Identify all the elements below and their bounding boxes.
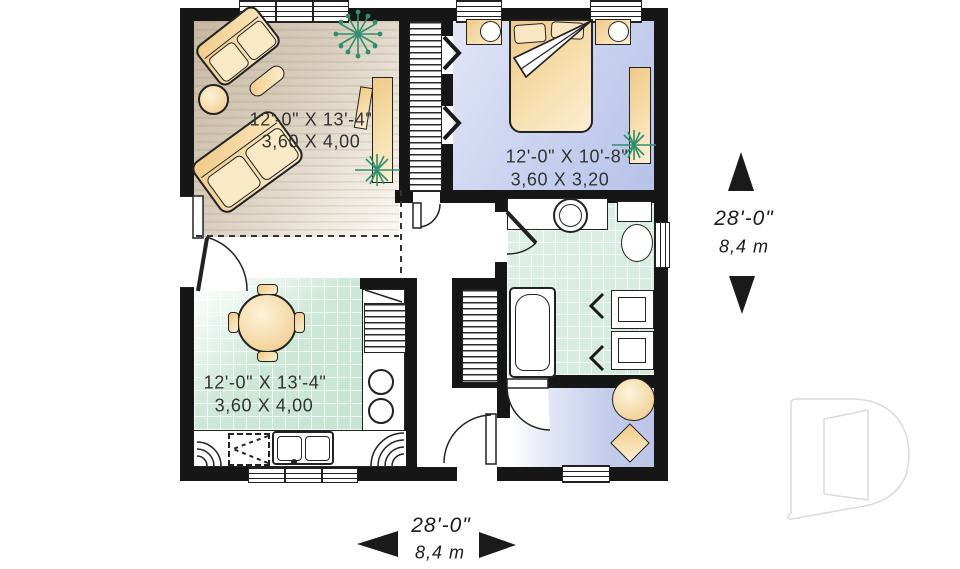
den-door <box>507 379 550 430</box>
living-room-label-imperial: 12'-0" X 13'-4" <box>250 110 373 131</box>
washer-dryer-chevron-icon <box>591 294 603 370</box>
bed-folded-sheet <box>514 21 591 77</box>
sink-faucet <box>291 459 297 465</box>
dimension-arrow-right-icon <box>479 532 516 558</box>
bathroom-door <box>507 212 536 254</box>
dimension-arrow-down-icon <box>729 276 755 314</box>
dimension-bottom-imperial: 28'-0" <box>411 514 471 538</box>
bedroom-label-metric: 3,60 X 3,20 <box>511 170 610 191</box>
plan-overlay <box>0 0 960 569</box>
living-room-label-metric: 3,60 X 4,00 <box>262 132 361 153</box>
logo-d-watermark-icon <box>788 399 909 519</box>
cabinet-diagonal <box>365 290 402 302</box>
plant-icon <box>334 10 383 59</box>
closet-bifold-icon <box>444 37 459 139</box>
dimension-right-imperial: 28'-0" <box>714 207 774 231</box>
kitchen-label-metric: 3,60 X 4,00 <box>215 396 314 417</box>
dimension-right-metric: 8,4 m <box>719 237 769 258</box>
front-door <box>444 414 496 464</box>
bedroom-label-imperial: 12'-0" X 10'-8" <box>506 147 629 168</box>
floor-plan: 12'-0" X 13'-4" 3,60 X 4,00 12'-0" X 10'… <box>0 0 960 569</box>
counter-corner-curves <box>197 433 404 466</box>
kitchen-label-imperial: 12'-0" X 13'-4" <box>204 373 327 394</box>
dimension-arrow-left-icon <box>357 531 398 557</box>
dishwasher-swing-dashed <box>233 436 268 463</box>
dimension-bottom-metric: 8,4 m <box>415 543 465 564</box>
plant-icon <box>355 154 400 186</box>
dimension-arrow-up-icon <box>728 152 754 191</box>
living-entry-door <box>193 196 247 291</box>
bedroom-door <box>413 203 440 228</box>
